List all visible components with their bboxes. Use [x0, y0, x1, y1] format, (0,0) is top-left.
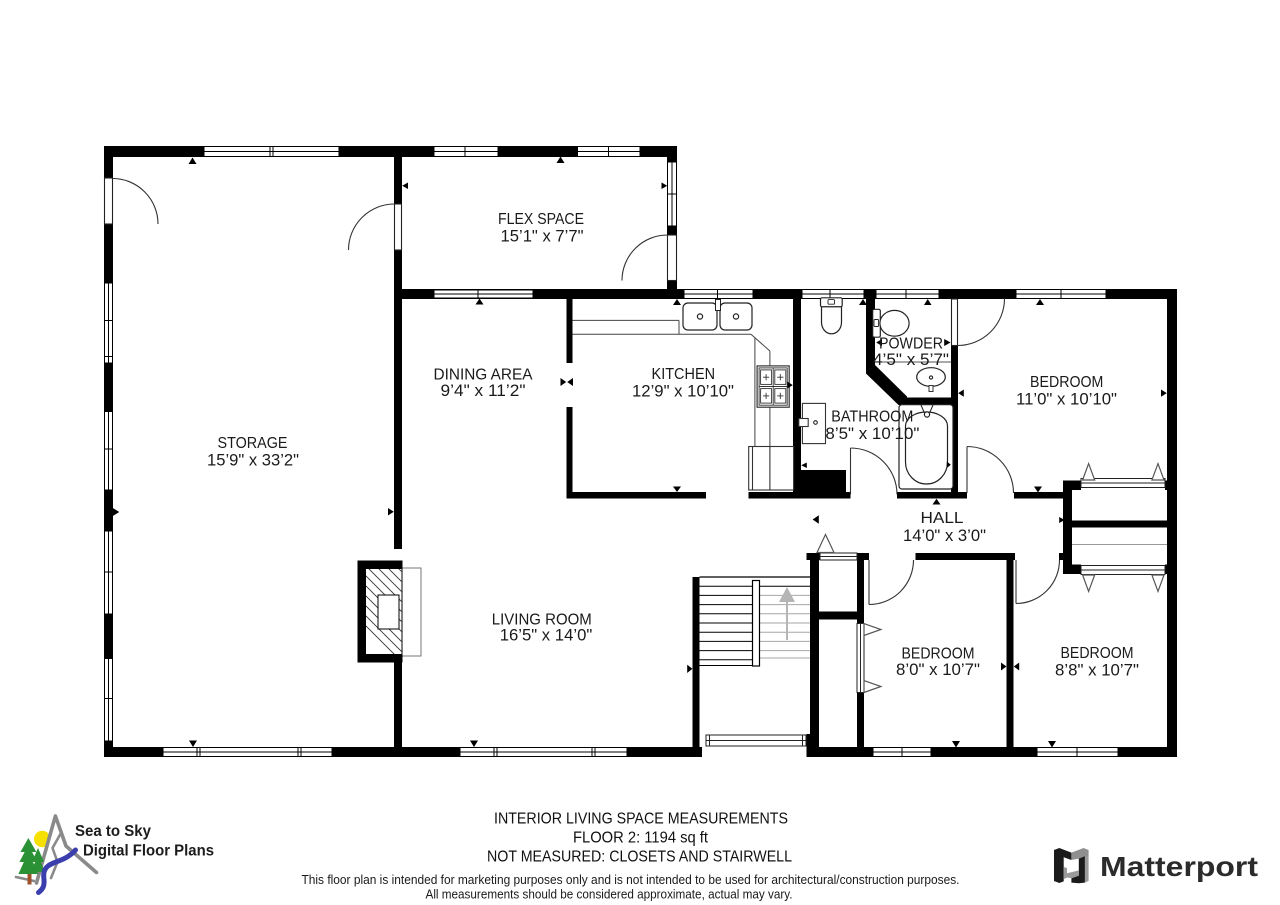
svg-text:NOT MEASURED: CLOSETS AND STAI: NOT MEASURED: CLOSETS AND STAIRWELL	[487, 849, 792, 866]
svg-text:Matterport: Matterport	[1100, 851, 1258, 882]
svg-text:4’5" x 5’7": 4’5" x 5’7"	[873, 350, 949, 369]
svg-text:8’0" x 10’7": 8’0" x 10’7"	[896, 660, 980, 679]
svg-text:INTERIOR LIVING SPACE MEASUREM: INTERIOR LIVING SPACE MEASUREMENTS	[494, 811, 788, 828]
svg-text:Digital Floor Plans: Digital Floor Plans	[83, 843, 214, 860]
svg-text:9’4" x 11’2": 9’4" x 11’2"	[441, 381, 526, 400]
svg-text:14’0" x 3’0": 14’0" x 3’0"	[903, 526, 986, 545]
svg-text:STORAGE: STORAGE	[218, 435, 288, 452]
svg-text:16’5" x 14’0": 16’5" x 14’0"	[500, 626, 593, 645]
svg-text:15’1" x 7’7": 15’1" x 7’7"	[501, 226, 584, 245]
svg-text:All measurements should be con: All measurements should be considered ap…	[426, 887, 793, 902]
svg-text:HALL: HALL	[921, 510, 964, 527]
svg-text:8’5" x 10’10": 8’5" x 10’10"	[825, 424, 919, 443]
svg-text:Sea to Sky: Sea to Sky	[75, 823, 151, 840]
svg-text:FLOOR 2: 1194 sq ft: FLOOR 2: 1194 sq ft	[573, 830, 709, 847]
svg-text:15’9" x 33’2": 15’9" x 33’2"	[207, 450, 299, 469]
svg-text:11’0" x 10’10": 11’0" x 10’10"	[1016, 389, 1117, 408]
svg-text:This floor plan is intended fo: This floor plan is intended for marketin…	[302, 872, 960, 887]
svg-text:12’9" x 10’10": 12’9" x 10’10"	[632, 381, 734, 400]
svg-text:FLEX SPACE: FLEX SPACE	[498, 211, 584, 228]
svg-text:BATHROOM: BATHROOM	[831, 408, 913, 425]
svg-text:8’8" x 10’7": 8’8" x 10’7"	[1055, 660, 1139, 679]
svg-text:BEDROOM: BEDROOM	[1061, 645, 1134, 662]
